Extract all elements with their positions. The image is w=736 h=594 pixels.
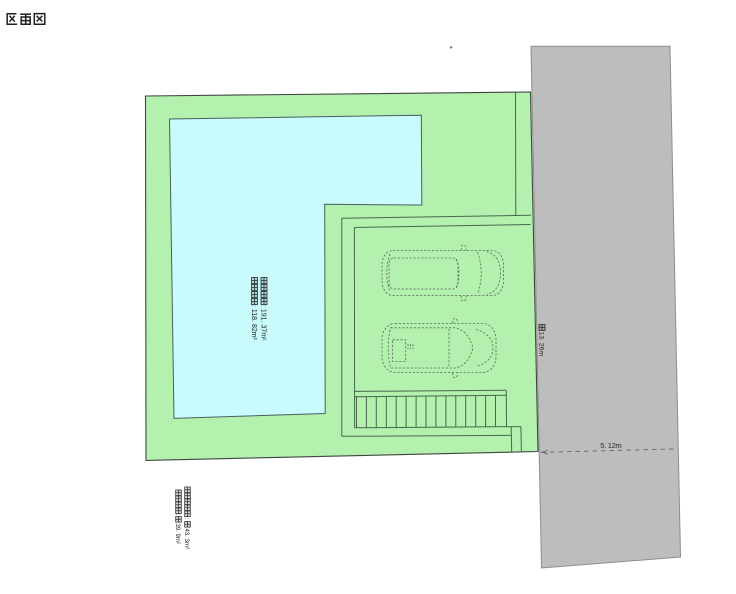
svg-text:39. 9m²: 39. 9m² <box>174 524 180 544</box>
svg-text:: 191. 37m²: : 191. 37m² <box>259 305 266 341</box>
svg-text:43. 3m³: 43. 3m³ <box>183 529 189 549</box>
svg-text:: 118. 82m²: : 118. 82m² <box>250 305 257 341</box>
svg-text:13. 26m: 13. 26m <box>537 332 544 357</box>
svg-text:5. 12m: 5. 12m <box>600 441 621 450</box>
